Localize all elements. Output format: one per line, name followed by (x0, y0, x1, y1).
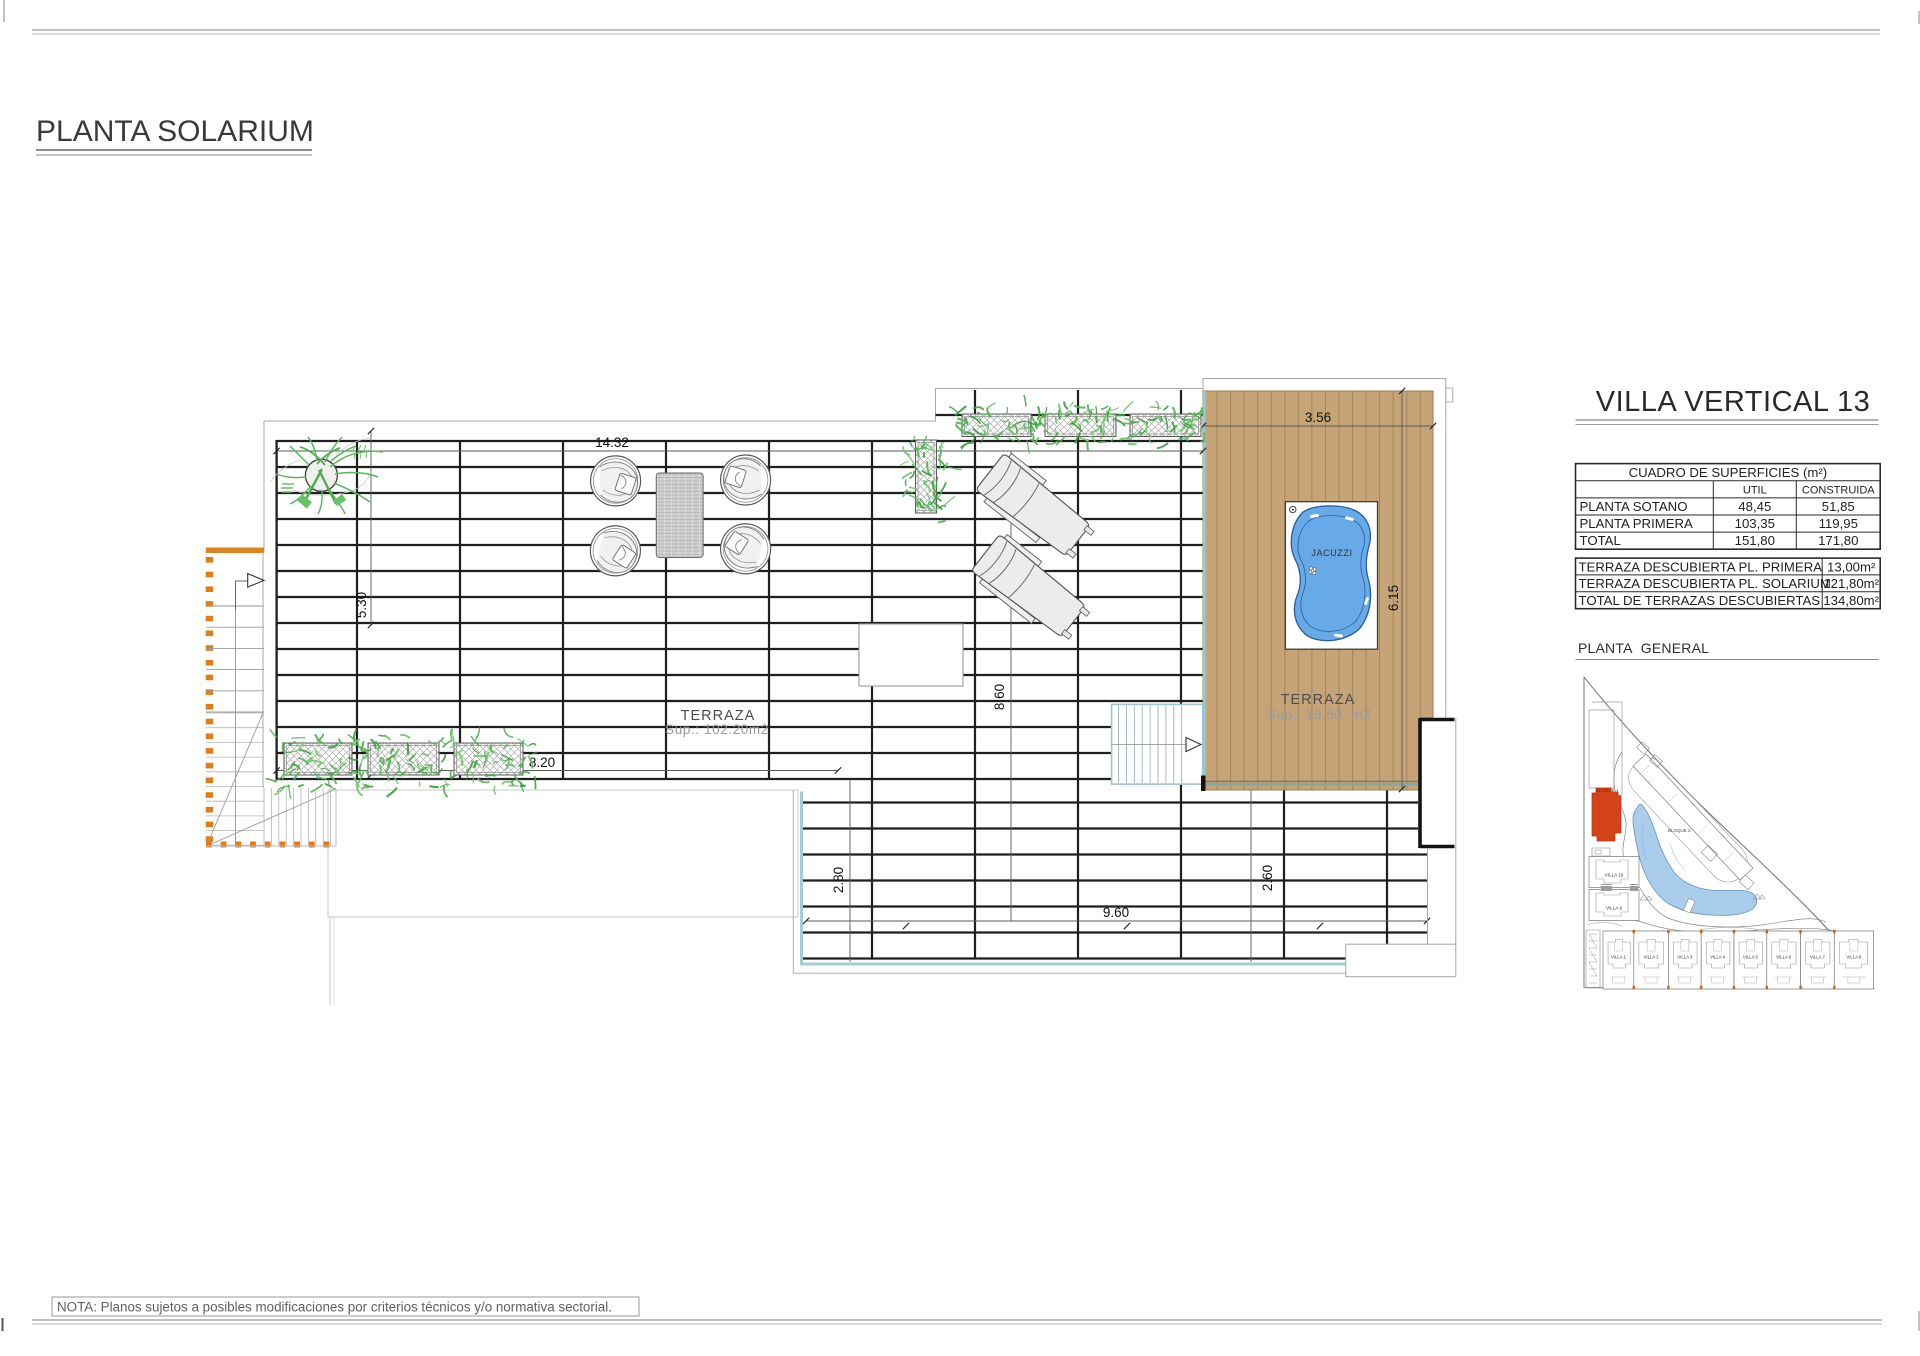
svg-text:PLANTA GENERAL: PLANTA GENERAL (1578, 640, 1709, 656)
svg-text:PLANTA SOLARIUM: PLANTA SOLARIUM (36, 115, 314, 148)
svg-text:UTIL: UTIL (1743, 485, 1767, 497)
svg-text:TOTAL DE TERRAZAS DESCUBIERTAS: TOTAL DE TERRAZAS DESCUBIERTAS (1579, 593, 1821, 608)
svg-text:VILLA 9: VILLA 9 (1606, 906, 1623, 911)
svg-text:CONSTRUIDA: CONSTRUIDA (1802, 485, 1875, 497)
svg-text:134,80m²: 134,80m² (1823, 593, 1879, 608)
svg-text:VILLA VERTICAL 13: VILLA VERTICAL 13 (1596, 386, 1870, 418)
svg-text:121,80m²: 121,80m² (1823, 576, 1879, 591)
svg-text:CUADRO DE SUPERFICIES (m²): CUADRO DE SUPERFICIES (m²) (1629, 465, 1828, 480)
svg-text:3.56: 3.56 (1305, 410, 1331, 425)
svg-text:13,00m²: 13,00m² (1827, 559, 1876, 574)
svg-text:Sup.: 19.60 m2: Sup.: 19.60 m2 (1267, 707, 1371, 722)
svg-text:8.60: 8.60 (992, 684, 1007, 710)
svg-text:5.30: 5.30 (354, 592, 369, 618)
svg-text:TERRAZA: TERRAZA (1281, 692, 1356, 708)
svg-text:171,80: 171,80 (1818, 533, 1858, 548)
svg-text:Sup.: 102.20m2: Sup.: 102.20m2 (665, 722, 769, 737)
svg-text:14.32: 14.32 (595, 435, 629, 450)
svg-text:JACUZZI: JACUZZI (1311, 548, 1352, 558)
svg-text:PLANTA SOTANO: PLANTA SOTANO (1580, 499, 1688, 514)
svg-text:TERRAZA DESCUBIERTA PL. SOLARI: TERRAZA DESCUBIERTA PL. SOLARIUM (1579, 576, 1831, 591)
svg-text:VILLA 4: VILLA 4 (1710, 955, 1726, 960)
svg-text:NOTA: Planos sujetos a posible: NOTA: Planos sujetos a posibles modifica… (57, 1300, 612, 1315)
svg-text:VILLA 6: VILLA 6 (1776, 955, 1792, 960)
svg-text:BLOQUE 1: BLOQUE 1 (1596, 788, 1619, 793)
svg-text:VILLA 7: VILLA 7 (1810, 955, 1826, 960)
svg-text:9.60: 9.60 (1103, 905, 1129, 920)
svg-text:BLOQUE 2: BLOQUE 2 (1668, 828, 1691, 833)
svg-text:VILLA 1: VILLA 1 (1611, 955, 1627, 960)
svg-text:VILLA 10: VILLA 10 (1605, 873, 1624, 878)
svg-text:VILLA 8: VILLA 8 (1846, 955, 1862, 960)
svg-text:VILLA 5: VILLA 5 (1743, 955, 1759, 960)
svg-text:51,85: 51,85 (1822, 499, 1855, 514)
svg-text:VILLA 3: VILLA 3 (1677, 955, 1693, 960)
svg-text:PLANTA PRIMERA: PLANTA PRIMERA (1580, 516, 1694, 531)
svg-text:103,35: 103,35 (1735, 516, 1775, 531)
svg-text:2.80: 2.80 (831, 867, 846, 893)
svg-text:TOTAL: TOTAL (1580, 533, 1621, 548)
svg-text:151,80: 151,80 (1735, 533, 1775, 548)
svg-text:6.15: 6.15 (1386, 585, 1401, 611)
svg-text:119,95: 119,95 (1819, 516, 1858, 531)
svg-text:VILLA 2: VILLA 2 (1644, 955, 1660, 960)
svg-text:2.60: 2.60 (1260, 865, 1275, 891)
svg-text:48,45: 48,45 (1738, 499, 1771, 514)
svg-text:TERRAZA DESCUBIERTA PL. PRIMER: TERRAZA DESCUBIERTA PL. PRIMERA (1579, 559, 1823, 574)
